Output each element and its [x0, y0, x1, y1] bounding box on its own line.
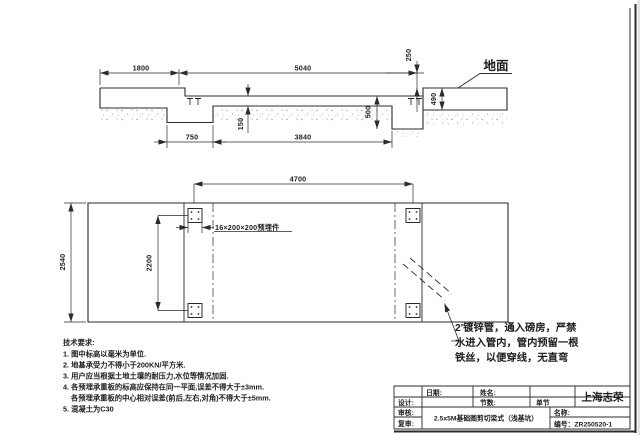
foundation-section-view: 1800 5040 250 490 500 150	[100, 49, 512, 148]
sections-value: 单节	[536, 398, 550, 407]
check-label: 审核:	[398, 408, 414, 417]
cad-drawing: 1800 5040 250 490 500 150	[0, 0, 640, 435]
dim-1800-value: 1800	[133, 64, 150, 73]
dim-3840: 3840	[213, 131, 392, 148]
drawing-sheet: 1800 5040 250 490 500 150	[0, 0, 640, 435]
section-anchor-plates	[187, 99, 422, 106]
technical-notes: 技术要求: 1. 图中标高以毫米为单位. 2. 地基承受力不得小于200KN/平…	[63, 338, 271, 414]
title-block: 日期: 姓名: 设计: 节数: 单节 审核: 复审: 2.5x5M基础图剪切梁式…	[394, 386, 630, 429]
product-name-label: 名称:	[554, 408, 570, 417]
border-outer-line	[394, 4, 636, 433]
dim-2200: 2200	[145, 216, 189, 311]
dim-2540-value: 2540	[58, 254, 67, 271]
ground-surface-callout: 地面	[458, 58, 512, 88]
dim-3840-value: 3840	[295, 133, 312, 142]
dim-500-value: 500	[364, 106, 373, 119]
conduit-note-line-3: 铁丝，以便穿线，无直弯	[455, 351, 568, 364]
dim-750: 750	[154, 125, 226, 148]
sections-label: 节数:	[480, 398, 496, 407]
tech-note-4b: 各预埋承重板的中心相对误差(前后,左右,对角)不得大于±5mm.	[70, 394, 271, 403]
date-label: 日期:	[426, 388, 442, 397]
plan-centerlines	[213, 203, 395, 322]
conduit-dashed-lines	[403, 258, 452, 300]
ground-hatch-right	[425, 112, 507, 125]
dim-250: 250	[385, 49, 424, 112]
dim-2540: 2540	[58, 203, 86, 322]
conduit-note-line-1: 2'镀锌管，通入磅房，严禁	[455, 321, 577, 334]
review-label: 复审:	[397, 419, 414, 428]
dim-5040: 5040	[179, 64, 417, 74]
dim-150-value: 150	[236, 118, 245, 131]
tech-note-2: 2. 地基承受力不得小于200KN/平方米.	[63, 361, 185, 370]
drawing-number: 编号：ZR250520-1	[554, 420, 612, 429]
tech-notes-title: 技术要求:	[63, 338, 95, 347]
tech-note-5: 5. 混凝土为C30	[63, 405, 114, 414]
ground-hatch-left	[100, 109, 167, 121]
dim-490: 490	[429, 88, 442, 110]
company-name: 上海志荣	[582, 391, 624, 404]
dim-1800: 1800	[100, 64, 179, 86]
dim-5040-value: 5040	[295, 64, 312, 73]
drawing-title: 2.5x5M基础图剪切梁式（浅基坑）	[434, 414, 538, 423]
name-label: 姓名:	[479, 388, 496, 397]
dim-2200-value: 2200	[145, 255, 154, 272]
tech-note-1: 1. 图中标高以毫米为单位.	[63, 350, 146, 359]
embed-plate-label: 16×200×200预埋件	[215, 223, 280, 232]
dim-4700-value: 4700	[290, 175, 307, 184]
conduit-callout: 2'镀锌管，通入磅房，严禁 水进入管内，管内预留一根 铁丝，以便穿线，无直弯	[403, 258, 579, 364]
foundation-plan-view: 4700 2540 2200 16×200×200预埋件 2'镀锌管，通入磅房，…	[58, 175, 579, 365]
ground-hatch-trench	[393, 130, 422, 137]
embed-plate-callout: 16×200×200预埋件	[176, 223, 292, 234]
design-label: 设计:	[398, 398, 414, 407]
tech-note-3: 3. 用户应当根据土地土壤的耐压力,水位等情况加固.	[63, 372, 228, 381]
sheet-border	[394, 0, 640, 435]
ground-label: 地面	[483, 58, 509, 73]
tech-note-4: 4. 各预埋承重板的标高应保持在同一平面,误差不得大于±3mm.	[63, 383, 264, 392]
dim-4700: 4700	[194, 175, 413, 204]
dim-250-value: 250	[404, 49, 413, 62]
conduit-note-line-2: 水进入管内，管内预留一根	[454, 336, 579, 349]
dim-750-value: 750	[186, 133, 199, 142]
plan-beam-lines	[184, 203, 422, 322]
dim-490-value: 490	[429, 93, 438, 106]
